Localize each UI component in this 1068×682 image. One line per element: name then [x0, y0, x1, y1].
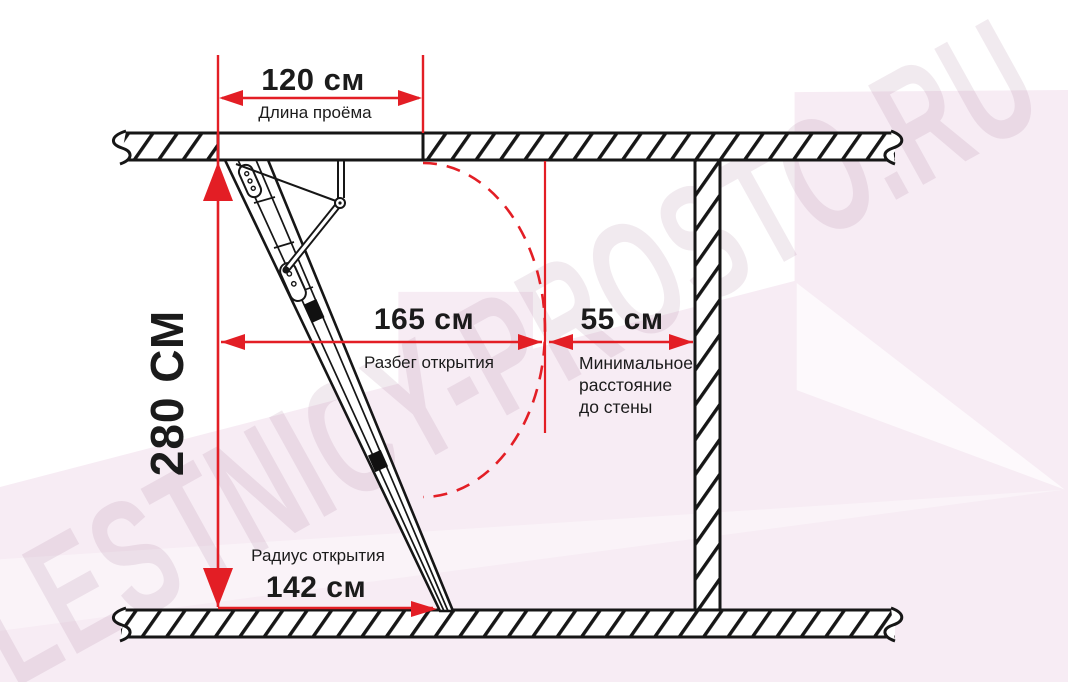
opening-radius-value: 142 см	[266, 571, 366, 605]
opening-length-caption: Длина проёма	[258, 103, 371, 123]
wall-distance-caption-line: до стены	[579, 396, 693, 418]
opening-run-value: 165 см	[374, 303, 474, 337]
wall-distance-value: 55 см	[580, 303, 663, 337]
ladder	[225, 160, 453, 611]
floor	[113, 608, 901, 641]
opening-frame	[218, 133, 423, 160]
wall	[695, 160, 720, 610]
opening-radius-caption: Радиус открытия	[251, 546, 385, 566]
opening-length-value: 120 см	[261, 62, 365, 98]
opening-run-caption: Разбег открытия	[364, 353, 494, 373]
ceiling-height-value: 280 СМ	[140, 310, 194, 476]
attic-ladder-dimension-diagram: LESTNICY-PROSTO.RU	[0, 0, 1068, 682]
wall-distance-caption-line: расстояние	[579, 374, 693, 396]
wall-distance-caption: Минимальное расстояние до стены	[579, 352, 693, 418]
wall-distance-caption-line: Минимальное	[579, 352, 693, 374]
dimension-ceiling-height	[203, 133, 233, 607]
